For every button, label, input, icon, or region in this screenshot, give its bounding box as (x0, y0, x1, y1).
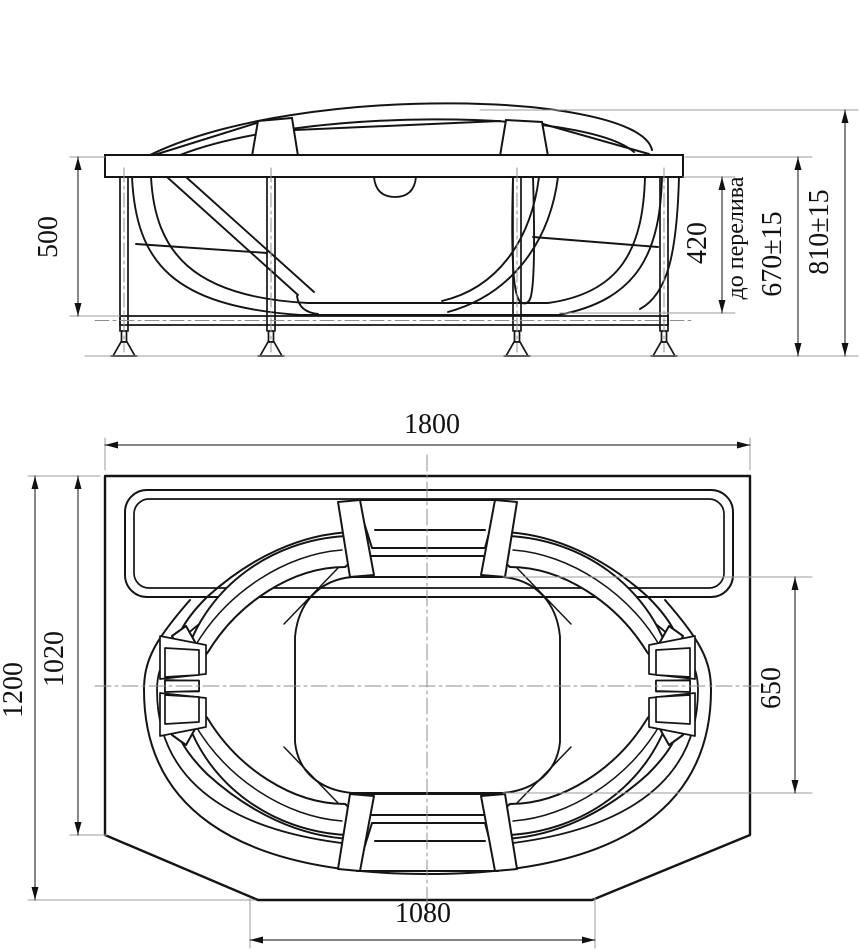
technical-drawing-sheet: 500 420 до перелива 670±15 810±15 (0, 0, 859, 950)
headrest-block-left (252, 118, 298, 156)
plan-view (28, 438, 812, 948)
dim-label-inner-basin-span: 650 (756, 667, 787, 709)
dim-label-rim-to-frame-height: 500 (33, 216, 64, 258)
dim-label-overflow-note: до перелива (723, 176, 749, 299)
corner-seat (172, 500, 374, 662)
dim-label-bottom-edge-length: 1080 (395, 898, 451, 929)
overflow-hole (374, 177, 416, 197)
dim-label-straight-side-width: 1020 (39, 631, 70, 687)
dim-label-rim-height-tolerance: 670±15 (757, 211, 788, 296)
headrest-block-right (500, 120, 548, 156)
backrest-arch (150, 103, 652, 156)
bathtub-technical-drawing: 500 420 до перелива 670±15 810±15 (0, 0, 859, 950)
dim-label-overall-width: 1200 (0, 662, 29, 718)
bowl-shell (132, 177, 679, 315)
dim-label-overflow-height: 420 (682, 222, 713, 264)
dim-label-overall-height-tolerance: 810±15 (804, 189, 835, 274)
dim-label-overall-length: 1800 (404, 409, 460, 440)
rim-plate (105, 155, 683, 177)
